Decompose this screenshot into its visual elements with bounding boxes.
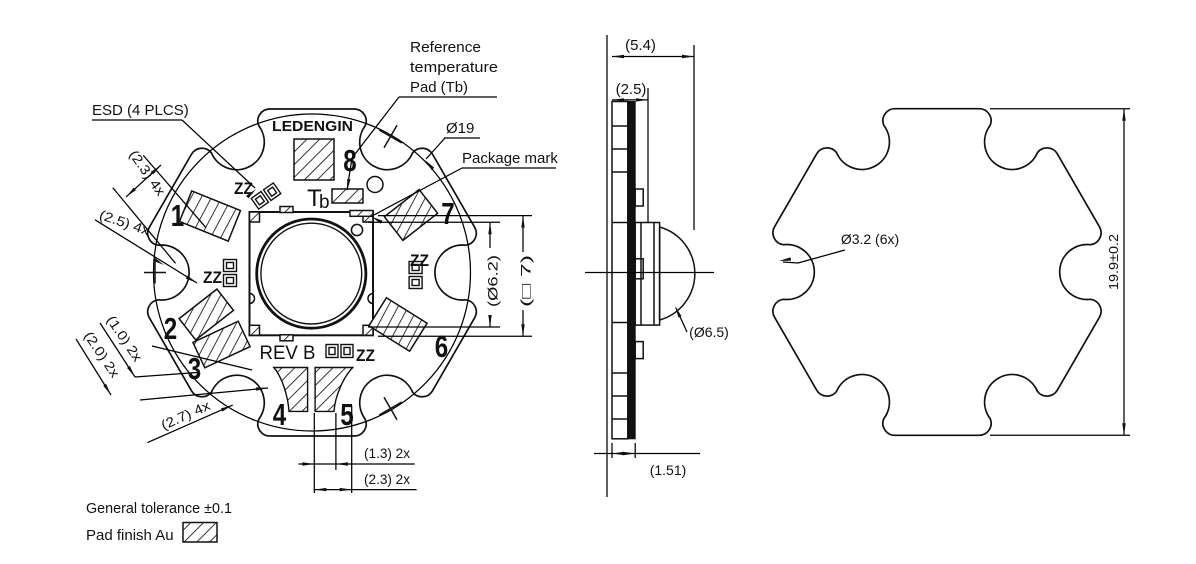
svg-text:(2.5): (2.5) bbox=[616, 81, 647, 98]
svg-text:ZZ: ZZ bbox=[410, 251, 429, 270]
svg-text:1: 1 bbox=[171, 198, 184, 233]
svg-text:(2.3) 2x: (2.3) 2x bbox=[364, 471, 410, 487]
svg-text:4: 4 bbox=[273, 397, 287, 432]
svg-text:(1.51): (1.51) bbox=[650, 462, 687, 478]
svg-text:(Ø6.5): (Ø6.5) bbox=[689, 324, 729, 340]
svg-text:(1.3) 2x: (1.3) 2x bbox=[364, 445, 410, 461]
svg-text:Pad (Tb): Pad (Tb) bbox=[410, 79, 468, 96]
svg-text:19.9±0.2: 19.9±0.2 bbox=[1107, 234, 1121, 290]
svg-text:b: b bbox=[319, 192, 330, 213]
svg-text:ZZ: ZZ bbox=[356, 346, 375, 365]
svg-text:Pad finish Au: Pad finish Au bbox=[86, 527, 174, 544]
svg-text:7: 7 bbox=[441, 196, 454, 231]
svg-text:REV B: REV B bbox=[260, 343, 316, 364]
svg-text:2: 2 bbox=[164, 311, 177, 346]
svg-text:(□ 7): (□ 7) bbox=[518, 255, 534, 307]
svg-text:Reference: Reference bbox=[410, 39, 481, 56]
svg-text:(5.4): (5.4) bbox=[625, 37, 656, 54]
svg-text:Ø3.2 (6x): Ø3.2 (6x) bbox=[841, 231, 899, 247]
svg-text:6: 6 bbox=[435, 329, 448, 364]
svg-text:Package mark: Package mark bbox=[462, 150, 558, 167]
svg-text:ESD (4 PLCS): ESD (4 PLCS) bbox=[92, 102, 189, 119]
svg-text:temperature: temperature bbox=[410, 59, 498, 76]
svg-text:LEDENGIN: LEDENGIN bbox=[272, 118, 353, 135]
svg-text:Ø19: Ø19 bbox=[446, 120, 474, 137]
svg-text:ZZ: ZZ bbox=[203, 268, 222, 287]
svg-text:(Ø6.2): (Ø6.2) bbox=[485, 255, 501, 307]
svg-text:General tolerance ±0.1: General tolerance ±0.1 bbox=[86, 500, 232, 517]
